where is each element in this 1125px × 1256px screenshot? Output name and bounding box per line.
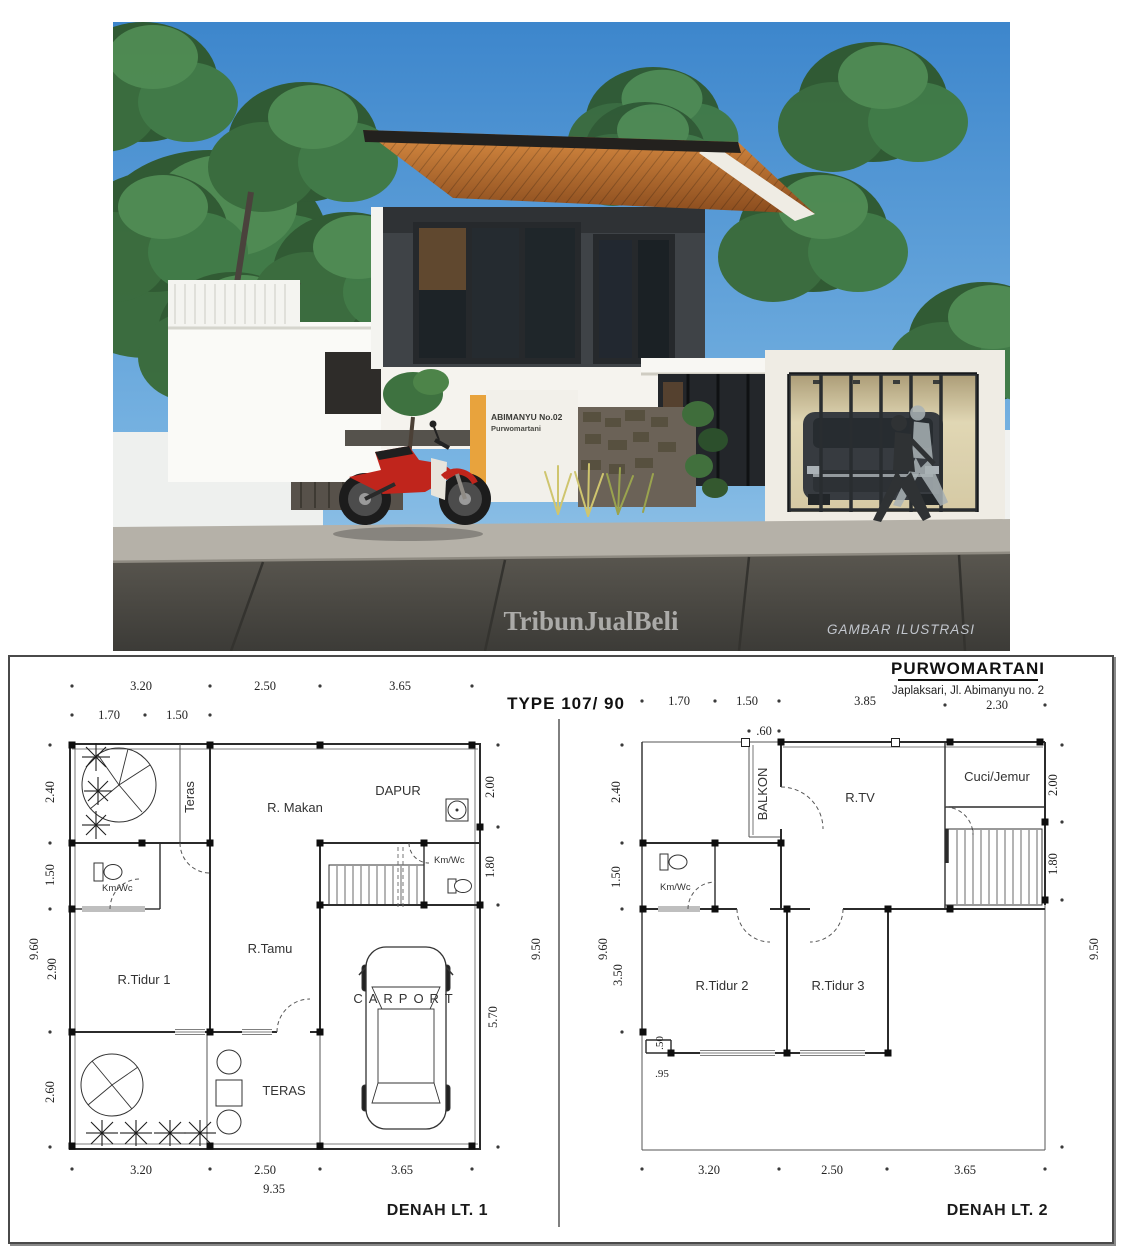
project-address: Japlaksari, Jl. Abimanyu no. 2 (892, 685, 1044, 697)
toilet-bowl (104, 865, 122, 880)
plan2-columns (640, 739, 1049, 1057)
dim: .95 (655, 1068, 669, 1080)
toilet2-bowl (455, 880, 472, 893)
dim: 3.20 (698, 1163, 720, 1177)
room-kmwc1: Km/Wc (102, 883, 133, 894)
dim: 2.50 (254, 1163, 276, 1177)
dim-total: 9.60 (596, 938, 610, 960)
house-sign-line2: Purwomartani (491, 424, 541, 433)
terrace-furniture (216, 1050, 242, 1134)
house-render-photo: ABIMANYU No.02 Purwomartani (113, 22, 1010, 651)
sheet-header: PURWOMARTANI Japlaksari, Jl. Abimanyu no… (507, 659, 1045, 1227)
dim: 2.40 (609, 781, 623, 803)
dim-total: 9.60 (27, 938, 41, 960)
plan1-stairs (329, 847, 424, 909)
house-scene: ABIMANYU No.02 Purwomartani (113, 22, 1010, 651)
dim-total: 9.50 (1087, 938, 1101, 960)
room-teras-front: TERAS (262, 1083, 306, 1098)
dim: 3.65 (389, 679, 411, 693)
dim: 5.70 (486, 1006, 500, 1028)
dim: 2.50 (254, 679, 276, 693)
plan2-inner-walls (642, 843, 1045, 1056)
room-cuci: Cuci/Jemur (964, 769, 1030, 784)
dim: 3.20 (130, 1163, 152, 1177)
dim: 3.20 (130, 679, 152, 693)
room-makan: R. Makan (267, 800, 323, 815)
dim: 2.00 (1046, 774, 1060, 796)
dim: 2.50 (821, 1163, 843, 1177)
room-balkon: BALKON (755, 768, 770, 821)
plan1-title: DENAH LT. 1 (387, 1202, 488, 1219)
dim: 1.50 (736, 694, 758, 708)
carport-car (359, 947, 453, 1129)
dim: 2.00 (483, 776, 497, 798)
dim: 1.50 (166, 708, 188, 722)
room-carport: CARPORT (353, 991, 458, 1006)
dim: .60 (756, 724, 772, 738)
floorplan-sheet: PURWOMARTANI Japlaksari, Jl. Abimanyu no… (8, 655, 1114, 1244)
dim: 1.70 (98, 708, 120, 722)
project-title: PURWOMARTANI (891, 659, 1045, 678)
dim-total: 9.35 (263, 1182, 285, 1196)
dim: 3.85 (854, 694, 876, 708)
plan2-outer-walls (642, 742, 1045, 1150)
dim: 1.50 (609, 866, 623, 888)
dim: 2.90 (45, 958, 59, 980)
toilet-tank (660, 854, 668, 870)
room-teras-side: Teras (182, 781, 197, 813)
room-rtv: R.TV (845, 790, 875, 805)
plan2-dimensions: 1.70 1.50 3.85 2.30 .60 2.40 1.50 9.60 3… (596, 694, 1101, 1177)
dim: 1.70 (668, 694, 690, 708)
dim: 1.80 (483, 856, 497, 878)
room-tidur2: R.Tidur 2 (696, 978, 749, 993)
floorplan-drawing: PURWOMARTANI Japlaksari, Jl. Abimanyu no… (10, 657, 1112, 1242)
plan2: BALKON R.TV Cuci/Jemur Km/Wc R.Tidur 2 R… (596, 694, 1101, 1219)
house-sign-line1: ABIMANYU No.02 (491, 412, 563, 422)
type-label: TYPE 107/ 90 (507, 694, 625, 713)
upper-windows (413, 222, 675, 364)
listing-image: ABIMANYU No.02 Purwomartani (0, 0, 1125, 1256)
plan2-service-stairs (945, 742, 1045, 909)
dim: 3.65 (391, 1163, 413, 1177)
dim: 3.50 (611, 964, 625, 986)
plan2-doors-fixtures (660, 854, 843, 942)
room-kmwc: Km/Wc (660, 882, 691, 893)
dim: 2.30 (986, 698, 1008, 712)
toilet-bowl (669, 855, 687, 869)
room-dapur: DAPUR (375, 783, 421, 798)
room-tamu: R.Tamu (248, 941, 293, 956)
photo-caption: GAMBAR ILUSTRASI (827, 622, 975, 637)
dim: 2.60 (43, 1081, 57, 1103)
dim: .50 (654, 1036, 666, 1050)
watermark: TribunJualBeli (503, 606, 679, 636)
room-tidur1: R.Tidur 1 (118, 972, 171, 987)
plan1: Teras R. Makan DAPUR Km/Wc Km/Wc R.Tidur… (27, 679, 543, 1219)
dim-total: 9.50 (529, 938, 543, 960)
room-tidur3: R.Tidur 3 (812, 978, 865, 993)
dim: 1.50 (43, 864, 57, 886)
dim: 3.65 (954, 1163, 976, 1177)
plan2-balkon (749, 742, 823, 909)
toilet-tank (94, 863, 103, 881)
plan2-title: DENAH LT. 2 (947, 1202, 1048, 1219)
dim: 1.80 (1046, 853, 1060, 875)
dim: 2.40 (43, 781, 57, 803)
room-kmwc2: Km/Wc (434, 855, 465, 866)
